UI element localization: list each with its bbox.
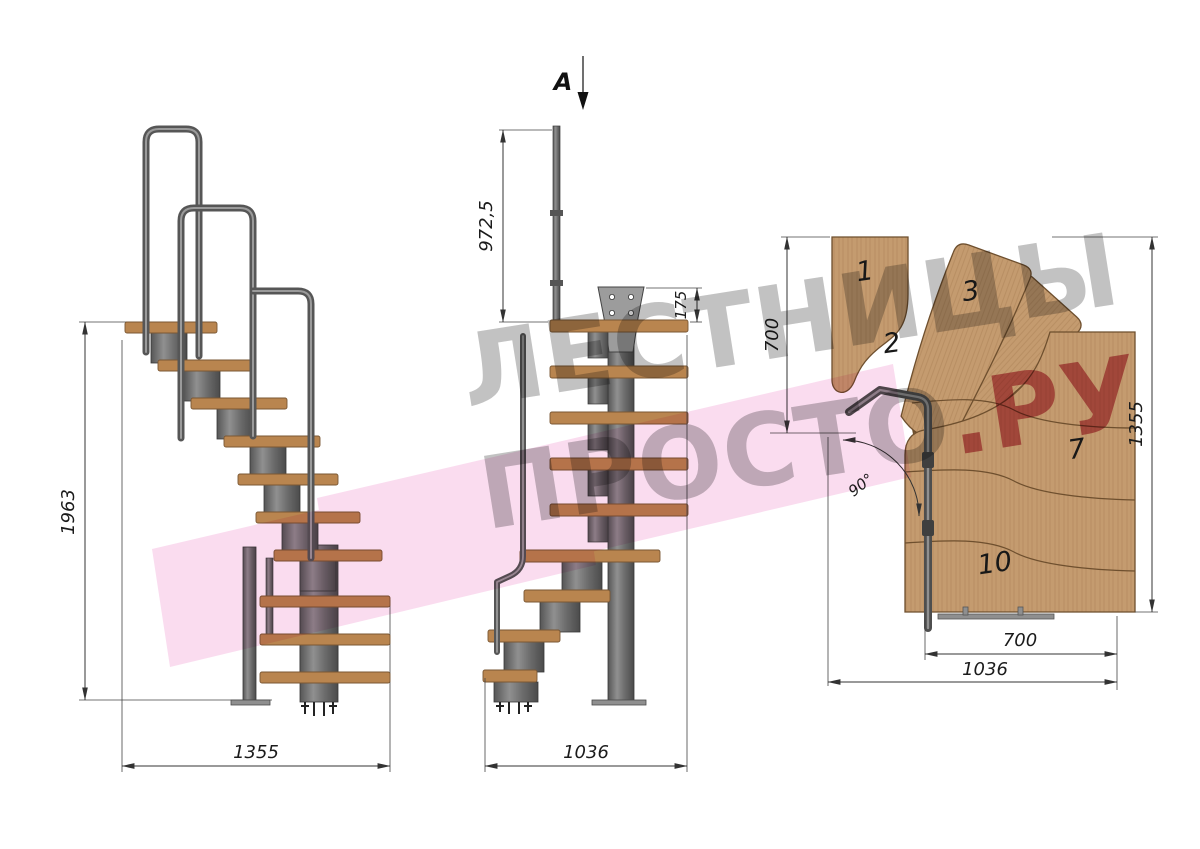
front-corner-base — [592, 700, 646, 705]
plan-outer-width-dim-label: 1036 — [962, 659, 1008, 680]
front-width-dim-label: 1036 — [563, 742, 609, 763]
section-marker: A — [552, 56, 589, 110]
side-elevation-view: 1963 1355 — [58, 129, 390, 772]
front-baluster-pole — [553, 126, 560, 322]
section-arrow-icon — [578, 92, 589, 110]
plan-floor-plate — [938, 614, 1054, 619]
drawing-page: 1963 1355 — [0, 0, 1200, 849]
side-width-dim-label: 1355 — [233, 742, 279, 763]
plan-inner-width-dim-label: 700 — [1003, 630, 1037, 651]
plan-plate-tab — [1018, 607, 1023, 615]
side-support-base — [231, 700, 270, 705]
pole-joint — [550, 280, 563, 286]
section-label: A — [552, 68, 573, 96]
side-anchor-bolts — [301, 702, 337, 716]
watermark-line2-red: .РУ — [941, 333, 1148, 478]
tread-number-10: 10 — [976, 546, 1014, 581]
pole-joint — [550, 210, 563, 216]
side-height-dim-label: 1963 — [58, 489, 79, 535]
front-pole-extension-lines — [499, 130, 552, 322]
plan-plate-tab — [963, 607, 968, 615]
front-anchor-bolts — [496, 702, 532, 714]
front-pole-dim-label: 972,5 — [476, 200, 497, 252]
